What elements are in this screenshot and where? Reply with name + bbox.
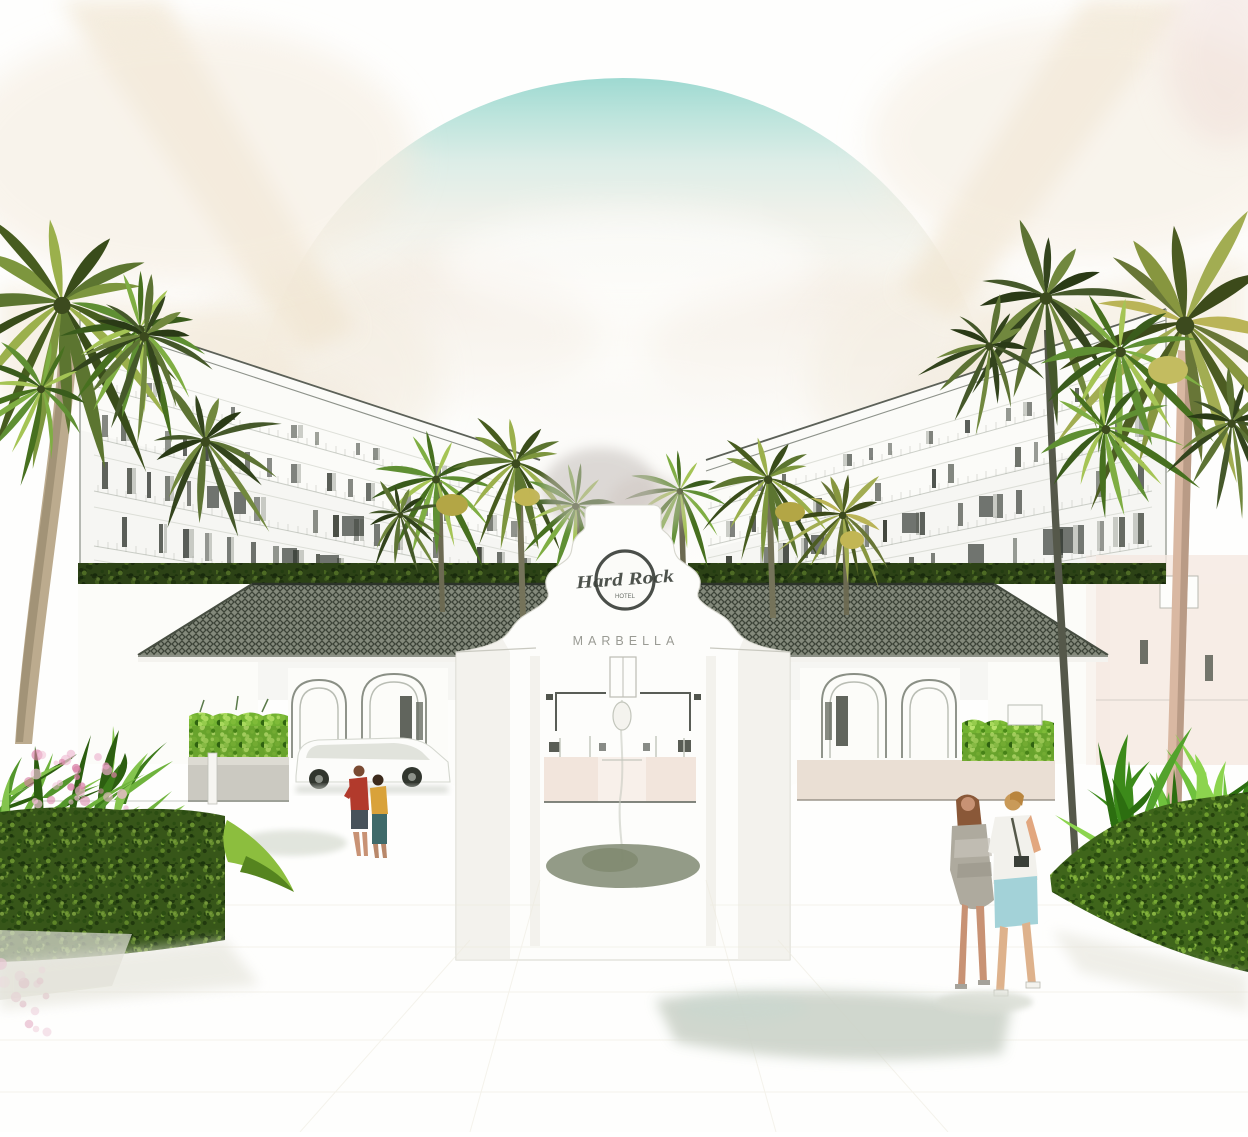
svg-text:HOTEL: HOTEL	[615, 594, 636, 600]
svg-text:MARBELLA: MARBELLA	[573, 634, 680, 648]
